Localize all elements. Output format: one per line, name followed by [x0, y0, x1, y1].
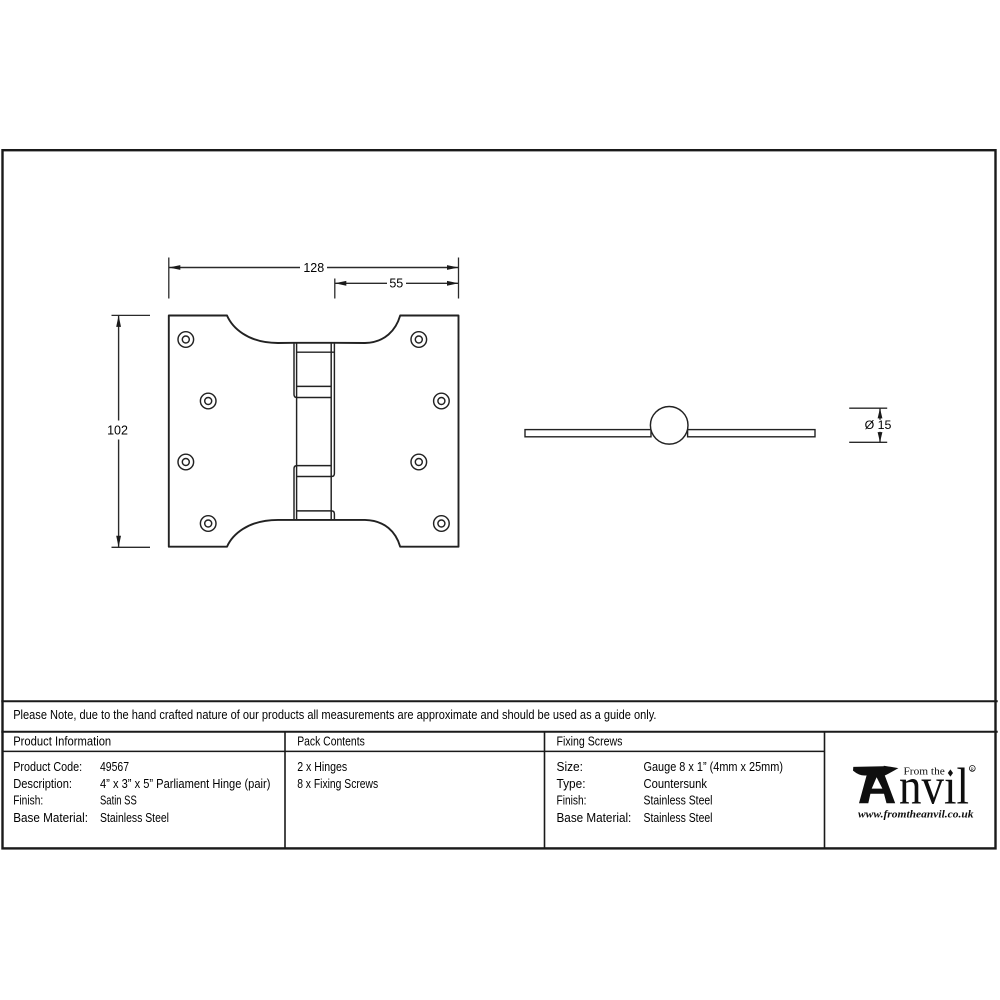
- svg-text:Product Information: Product Information: [13, 734, 111, 749]
- svg-text:Fixing Screws: Fixing Screws: [557, 734, 623, 749]
- svg-text:Stainless Steel: Stainless Steel: [100, 810, 169, 825]
- svg-text:4” x 3” x 5” Parliament Hinge: 4” x 3” x 5” Parliament Hinge (pair): [100, 776, 270, 791]
- svg-text:Ø 15: Ø 15: [865, 418, 892, 432]
- svg-text:55: 55: [389, 277, 403, 291]
- svg-text:8 x Fixing Screws: 8 x Fixing Screws: [297, 776, 378, 791]
- svg-text:From the: From the: [904, 766, 946, 777]
- svg-text:Stainless Steel: Stainless Steel: [644, 810, 713, 825]
- svg-text:Product Code:: Product Code:: [13, 759, 82, 774]
- svg-text:Base Material:: Base Material:: [13, 810, 88, 825]
- svg-text:Gauge 8 x 1” (4mm x 25mm): Gauge 8 x 1” (4mm x 25mm): [644, 759, 784, 774]
- svg-text:Type:: Type:: [557, 776, 586, 791]
- svg-text:Satin SS: Satin SS: [100, 793, 137, 808]
- svg-text:2 x Hinges: 2 x Hinges: [297, 759, 347, 774]
- svg-text:Description:: Description:: [13, 776, 72, 791]
- svg-text:Base Material:: Base Material:: [557, 810, 632, 825]
- svg-text:Please Note, due to the hand c: Please Note, due to the hand crafted nat…: [13, 707, 656, 722]
- svg-text:Size:: Size:: [557, 759, 584, 774]
- svg-text:Countersunk: Countersunk: [644, 776, 708, 791]
- svg-text:Pack Contents: Pack Contents: [297, 734, 365, 749]
- svg-text:102: 102: [107, 423, 128, 437]
- svg-text:128: 128: [303, 261, 324, 275]
- svg-text:49567: 49567: [100, 759, 129, 774]
- svg-text:Finish:: Finish:: [13, 793, 43, 808]
- svg-text:Finish:: Finish:: [557, 793, 587, 808]
- svg-text:www.fromtheanvil.co.uk: www.fromtheanvil.co.uk: [858, 810, 974, 821]
- svg-text:Stainless Steel: Stainless Steel: [644, 793, 713, 808]
